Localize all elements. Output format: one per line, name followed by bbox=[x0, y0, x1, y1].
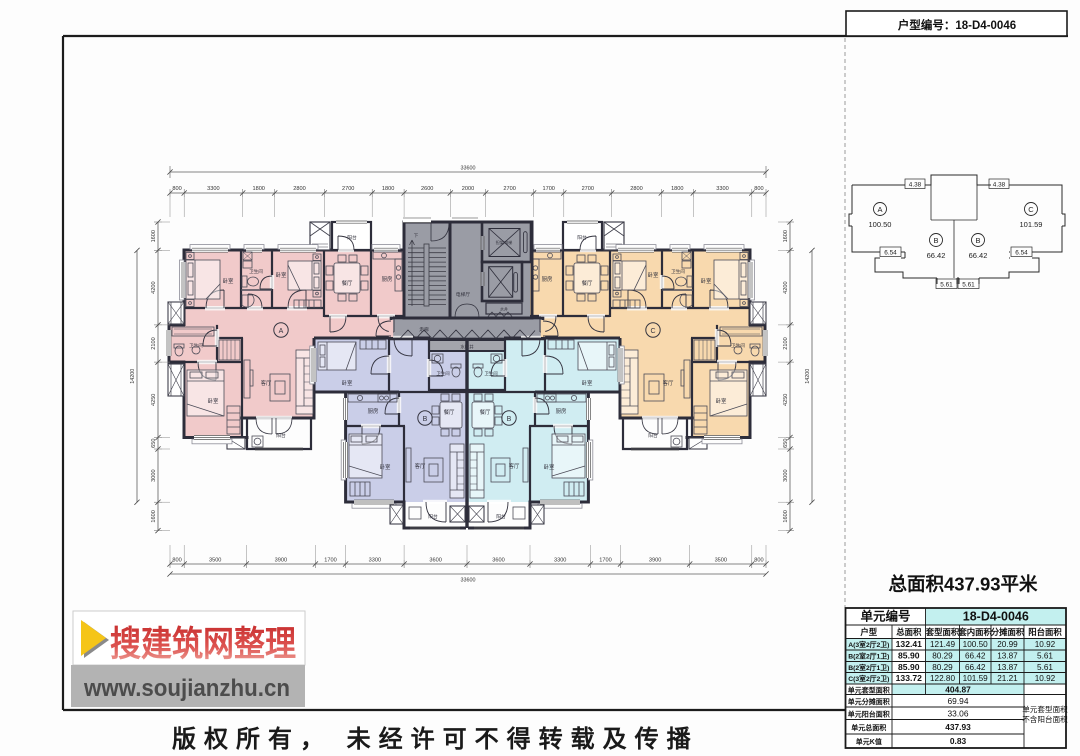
svg-text:101.59: 101.59 bbox=[963, 674, 988, 683]
svg-text:3300: 3300 bbox=[716, 186, 728, 192]
svg-text:69.94: 69.94 bbox=[948, 696, 969, 706]
svg-text:100.50: 100.50 bbox=[963, 640, 988, 649]
svg-text:客厅: 客厅 bbox=[663, 379, 674, 387]
svg-text:122.80: 122.80 bbox=[930, 674, 955, 683]
svg-text:电梯厅: 电梯厅 bbox=[456, 291, 471, 298]
svg-text:1700: 1700 bbox=[599, 558, 611, 564]
svg-text:卫生间: 卫生间 bbox=[671, 268, 685, 275]
svg-text:2800: 2800 bbox=[630, 186, 642, 192]
svg-text:卧室: 卧室 bbox=[208, 397, 219, 405]
svg-text:www.soujianzhu.cn: www.soujianzhu.cn bbox=[83, 675, 290, 702]
svg-text:4.38: 4.38 bbox=[993, 182, 1006, 189]
svg-text:66.42: 66.42 bbox=[927, 251, 946, 260]
svg-text:3500: 3500 bbox=[209, 558, 221, 564]
svg-text:2700: 2700 bbox=[582, 186, 594, 192]
svg-text:户型: 户型 bbox=[860, 627, 877, 637]
svg-text:卧室: 卧室 bbox=[716, 397, 727, 405]
svg-text:121.49: 121.49 bbox=[930, 640, 955, 649]
svg-text:厨房: 厨房 bbox=[542, 275, 553, 283]
svg-text:A: A bbox=[877, 205, 882, 214]
svg-text:B(2室2厅1卫): B(2室2厅1卫) bbox=[848, 663, 889, 672]
svg-text:2700: 2700 bbox=[503, 186, 515, 192]
svg-text:800: 800 bbox=[172, 186, 181, 192]
svg-text:单元套型面积: 单元套型面积 bbox=[848, 686, 890, 695]
svg-text:404.87: 404.87 bbox=[945, 685, 971, 695]
svg-text:餐厅: 餐厅 bbox=[342, 279, 353, 287]
svg-text:4250: 4250 bbox=[151, 394, 157, 406]
svg-text:客厅: 客厅 bbox=[261, 379, 272, 387]
svg-text:卧室: 卧室 bbox=[701, 277, 712, 285]
svg-text:阳台: 阳台 bbox=[496, 513, 506, 520]
svg-text:3600: 3600 bbox=[429, 558, 441, 564]
svg-text:2000: 2000 bbox=[462, 186, 474, 192]
svg-text:卧室: 卧室 bbox=[648, 271, 659, 279]
svg-text:5.61: 5.61 bbox=[962, 282, 975, 289]
svg-text:18-D4-0046: 18-D4-0046 bbox=[963, 610, 1029, 624]
svg-text:B(2室2厅1卫): B(2室2厅1卫) bbox=[848, 652, 889, 661]
svg-text:650: 650 bbox=[151, 439, 157, 448]
svg-text:1700: 1700 bbox=[324, 558, 336, 564]
svg-text:B: B bbox=[423, 416, 428, 423]
svg-text:套型面积: 套型面积 bbox=[926, 627, 960, 637]
svg-text:1600: 1600 bbox=[783, 230, 789, 242]
svg-text:1600: 1600 bbox=[783, 510, 789, 522]
svg-text:1800: 1800 bbox=[671, 186, 683, 192]
svg-text:66.42: 66.42 bbox=[965, 652, 986, 661]
svg-text:单元分摊面积: 单元分摊面积 bbox=[848, 697, 890, 706]
svg-text:C: C bbox=[650, 328, 655, 335]
svg-text:0.83: 0.83 bbox=[950, 736, 967, 746]
svg-text:B: B bbox=[933, 236, 938, 245]
svg-text:1700: 1700 bbox=[542, 186, 554, 192]
svg-text:5.61: 5.61 bbox=[1037, 652, 1053, 661]
svg-text:33600: 33600 bbox=[461, 578, 476, 584]
svg-text:14200: 14200 bbox=[130, 369, 136, 384]
svg-text:卧室: 卧室 bbox=[223, 277, 234, 285]
svg-text:2100: 2100 bbox=[151, 337, 157, 349]
svg-text:3300: 3300 bbox=[369, 558, 381, 564]
svg-text:单元K值: 单元K值 bbox=[856, 737, 882, 746]
svg-text:6.54: 6.54 bbox=[1015, 250, 1028, 257]
svg-text:14200: 14200 bbox=[805, 369, 811, 384]
svg-text:版权所有， 未经许可不得转载及传播: 版权所有， 未经许可不得转载及传播 bbox=[172, 725, 699, 753]
svg-text:阳台: 阳台 bbox=[648, 432, 658, 439]
svg-text:单元总面积: 单元总面积 bbox=[851, 723, 886, 732]
svg-text:阳台: 阳台 bbox=[347, 234, 357, 241]
svg-text:3300: 3300 bbox=[554, 558, 566, 564]
svg-text:搜建筑网整理: 搜建筑网整理 bbox=[110, 625, 296, 664]
svg-text:33600: 33600 bbox=[461, 166, 476, 172]
svg-text:卫生间: 卫生间 bbox=[731, 342, 745, 349]
svg-text:走廊: 走廊 bbox=[419, 326, 429, 333]
svg-text:3000: 3000 bbox=[151, 469, 157, 481]
svg-text:阳台: 阳台 bbox=[276, 432, 286, 439]
svg-text:3600: 3600 bbox=[492, 558, 504, 564]
svg-text:33.06: 33.06 bbox=[948, 709, 969, 719]
svg-text:4200: 4200 bbox=[783, 281, 789, 293]
svg-text:800: 800 bbox=[754, 558, 763, 564]
svg-text:卧室: 卧室 bbox=[380, 463, 391, 471]
svg-text:卫生间: 卫生间 bbox=[436, 370, 449, 377]
svg-text:不含阳台面积: 不含阳台面积 bbox=[1022, 714, 1068, 724]
svg-text:B: B bbox=[507, 416, 512, 423]
svg-text:800: 800 bbox=[754, 186, 763, 192]
svg-text:总面积: 总面积 bbox=[896, 627, 922, 637]
svg-text:20.99: 20.99 bbox=[997, 640, 1018, 649]
svg-text:85.90: 85.90 bbox=[898, 651, 920, 661]
svg-text:6.54: 6.54 bbox=[884, 250, 897, 257]
svg-text:3500: 3500 bbox=[715, 558, 727, 564]
svg-text:800: 800 bbox=[172, 558, 181, 564]
svg-text:2800: 2800 bbox=[293, 186, 305, 192]
svg-text:餐厅: 餐厅 bbox=[582, 279, 593, 287]
svg-text:卧室: 卧室 bbox=[276, 271, 287, 279]
svg-text:卧室: 卧室 bbox=[582, 379, 593, 387]
svg-text:水井: 水井 bbox=[500, 306, 508, 312]
svg-text:101.59: 101.59 bbox=[1020, 220, 1043, 229]
svg-text:卧室: 卧室 bbox=[342, 379, 353, 387]
svg-text:B: B bbox=[975, 236, 980, 245]
svg-text:单元编号: 单元编号 bbox=[860, 609, 910, 624]
svg-text:13.87: 13.87 bbox=[997, 663, 1018, 672]
svg-text:C(3室2厅2卫): C(3室2厅2卫) bbox=[848, 674, 889, 683]
svg-text:437.93: 437.93 bbox=[945, 722, 971, 732]
svg-text:阳台: 阳台 bbox=[577, 234, 587, 241]
svg-text:10.92: 10.92 bbox=[1035, 640, 1056, 649]
svg-text:厨房: 厨房 bbox=[368, 407, 379, 415]
svg-text:80.29: 80.29 bbox=[932, 652, 953, 661]
svg-text:C: C bbox=[1028, 205, 1034, 214]
svg-text:1600: 1600 bbox=[151, 230, 157, 242]
svg-text:3000: 3000 bbox=[783, 469, 789, 481]
svg-text:卫生间: 卫生间 bbox=[484, 370, 497, 377]
svg-text:80.29: 80.29 bbox=[932, 663, 953, 672]
svg-text:132.41: 132.41 bbox=[896, 639, 923, 649]
svg-text:分摊面积: 分摊面积 bbox=[991, 627, 1025, 637]
svg-text:4200: 4200 bbox=[151, 281, 157, 293]
svg-text:13.87: 13.87 bbox=[997, 652, 1018, 661]
svg-text:水暖井: 水暖井 bbox=[460, 344, 474, 351]
svg-text:4250: 4250 bbox=[783, 394, 789, 406]
svg-text:厨房: 厨房 bbox=[556, 407, 567, 415]
svg-text:66.42: 66.42 bbox=[969, 251, 988, 260]
svg-text:5.61: 5.61 bbox=[1037, 663, 1053, 672]
svg-text:单元套型面积: 单元套型面积 bbox=[1022, 704, 1068, 714]
svg-text:卧室: 卧室 bbox=[544, 463, 555, 471]
svg-text:1600: 1600 bbox=[151, 510, 157, 522]
svg-text:1800: 1800 bbox=[252, 186, 264, 192]
svg-text:阳台面积: 阳台面积 bbox=[1028, 627, 1062, 637]
svg-text:卫生间: 卫生间 bbox=[249, 268, 263, 275]
svg-text:5.61: 5.61 bbox=[940, 282, 953, 289]
svg-text:2600: 2600 bbox=[421, 186, 433, 192]
svg-text:100.50: 100.50 bbox=[869, 220, 892, 229]
svg-text:户型编号：18-D4-0046: 户型编号：18-D4-0046 bbox=[898, 18, 1016, 32]
svg-text:单元阳台面积: 单元阳台面积 bbox=[848, 710, 890, 719]
svg-text:3900: 3900 bbox=[275, 558, 287, 564]
svg-text:10.92: 10.92 bbox=[1035, 674, 1056, 683]
svg-text:66.42: 66.42 bbox=[965, 663, 986, 672]
svg-text:A: A bbox=[279, 328, 284, 335]
svg-text:1800: 1800 bbox=[382, 186, 394, 192]
svg-text:21.21: 21.21 bbox=[997, 674, 1018, 683]
svg-text:卫生间: 卫生间 bbox=[189, 342, 203, 349]
svg-text:4.38: 4.38 bbox=[909, 182, 922, 189]
svg-text:餐厅: 餐厅 bbox=[444, 408, 455, 416]
svg-text:2100: 2100 bbox=[783, 337, 789, 349]
svg-text:厨房: 厨房 bbox=[382, 275, 393, 283]
svg-text:客厅: 客厅 bbox=[415, 462, 426, 470]
svg-text:餐厅: 餐厅 bbox=[480, 408, 491, 416]
svg-text:总面积437.93平米: 总面积437.93平米 bbox=[888, 574, 1038, 595]
svg-text:担架电梯: 担架电梯 bbox=[496, 239, 513, 246]
svg-text:650: 650 bbox=[783, 439, 789, 448]
svg-text:阳台: 阳台 bbox=[428, 513, 438, 520]
svg-text:套内面积: 套内面积 bbox=[958, 627, 992, 637]
svg-text:3900: 3900 bbox=[649, 558, 661, 564]
svg-text:3300: 3300 bbox=[207, 186, 219, 192]
svg-text:客厅: 客厅 bbox=[509, 462, 520, 470]
svg-text:2700: 2700 bbox=[342, 186, 354, 192]
svg-text:133.72: 133.72 bbox=[896, 673, 923, 683]
svg-text:85.90: 85.90 bbox=[898, 662, 920, 672]
svg-text:A(3室2厅2卫): A(3室2厅2卫) bbox=[848, 640, 889, 649]
